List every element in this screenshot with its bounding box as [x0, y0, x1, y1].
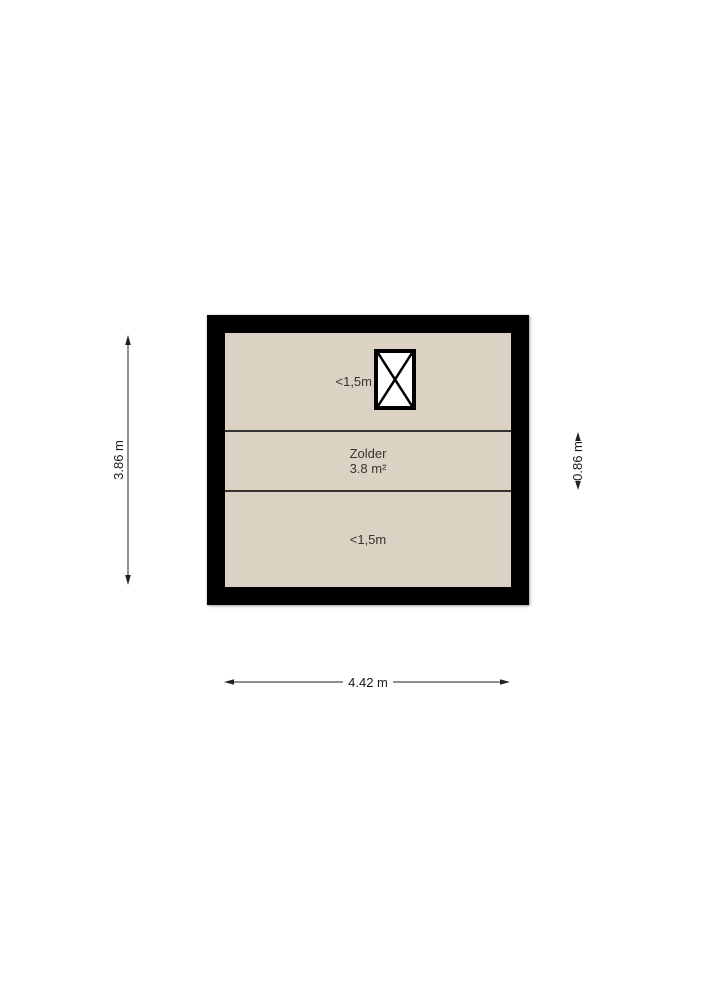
attic-floor: <1,5m Zolder 3.8 m² <1,5m: [225, 333, 511, 587]
roof-window-icon: [374, 349, 416, 410]
floorplan: <1,5m Zolder 3.8 m² <1,5m: [207, 315, 529, 605]
floorplan-page: <1,5m Zolder 3.8 m² <1,5m 3.86 m: [0, 0, 707, 1000]
headroom-label-bottom: <1,5m: [350, 532, 387, 547]
low-headroom-zone-bottom: <1,5m: [225, 492, 511, 587]
room-name-label: Zolder: [350, 446, 387, 461]
low-headroom-zone-top: <1,5m: [225, 333, 511, 430]
room-zone-zolder: Zolder 3.8 m²: [225, 432, 511, 490]
headroom-label-top: <1,5m: [225, 374, 372, 389]
height-dimension-label: 3.86 m: [111, 420, 127, 500]
room-area-label: 3.8 m²: [350, 461, 387, 476]
middle-height-dimension-label: 0.86 m: [570, 421, 586, 501]
width-dimension-label: 4.42 m: [343, 675, 393, 690]
